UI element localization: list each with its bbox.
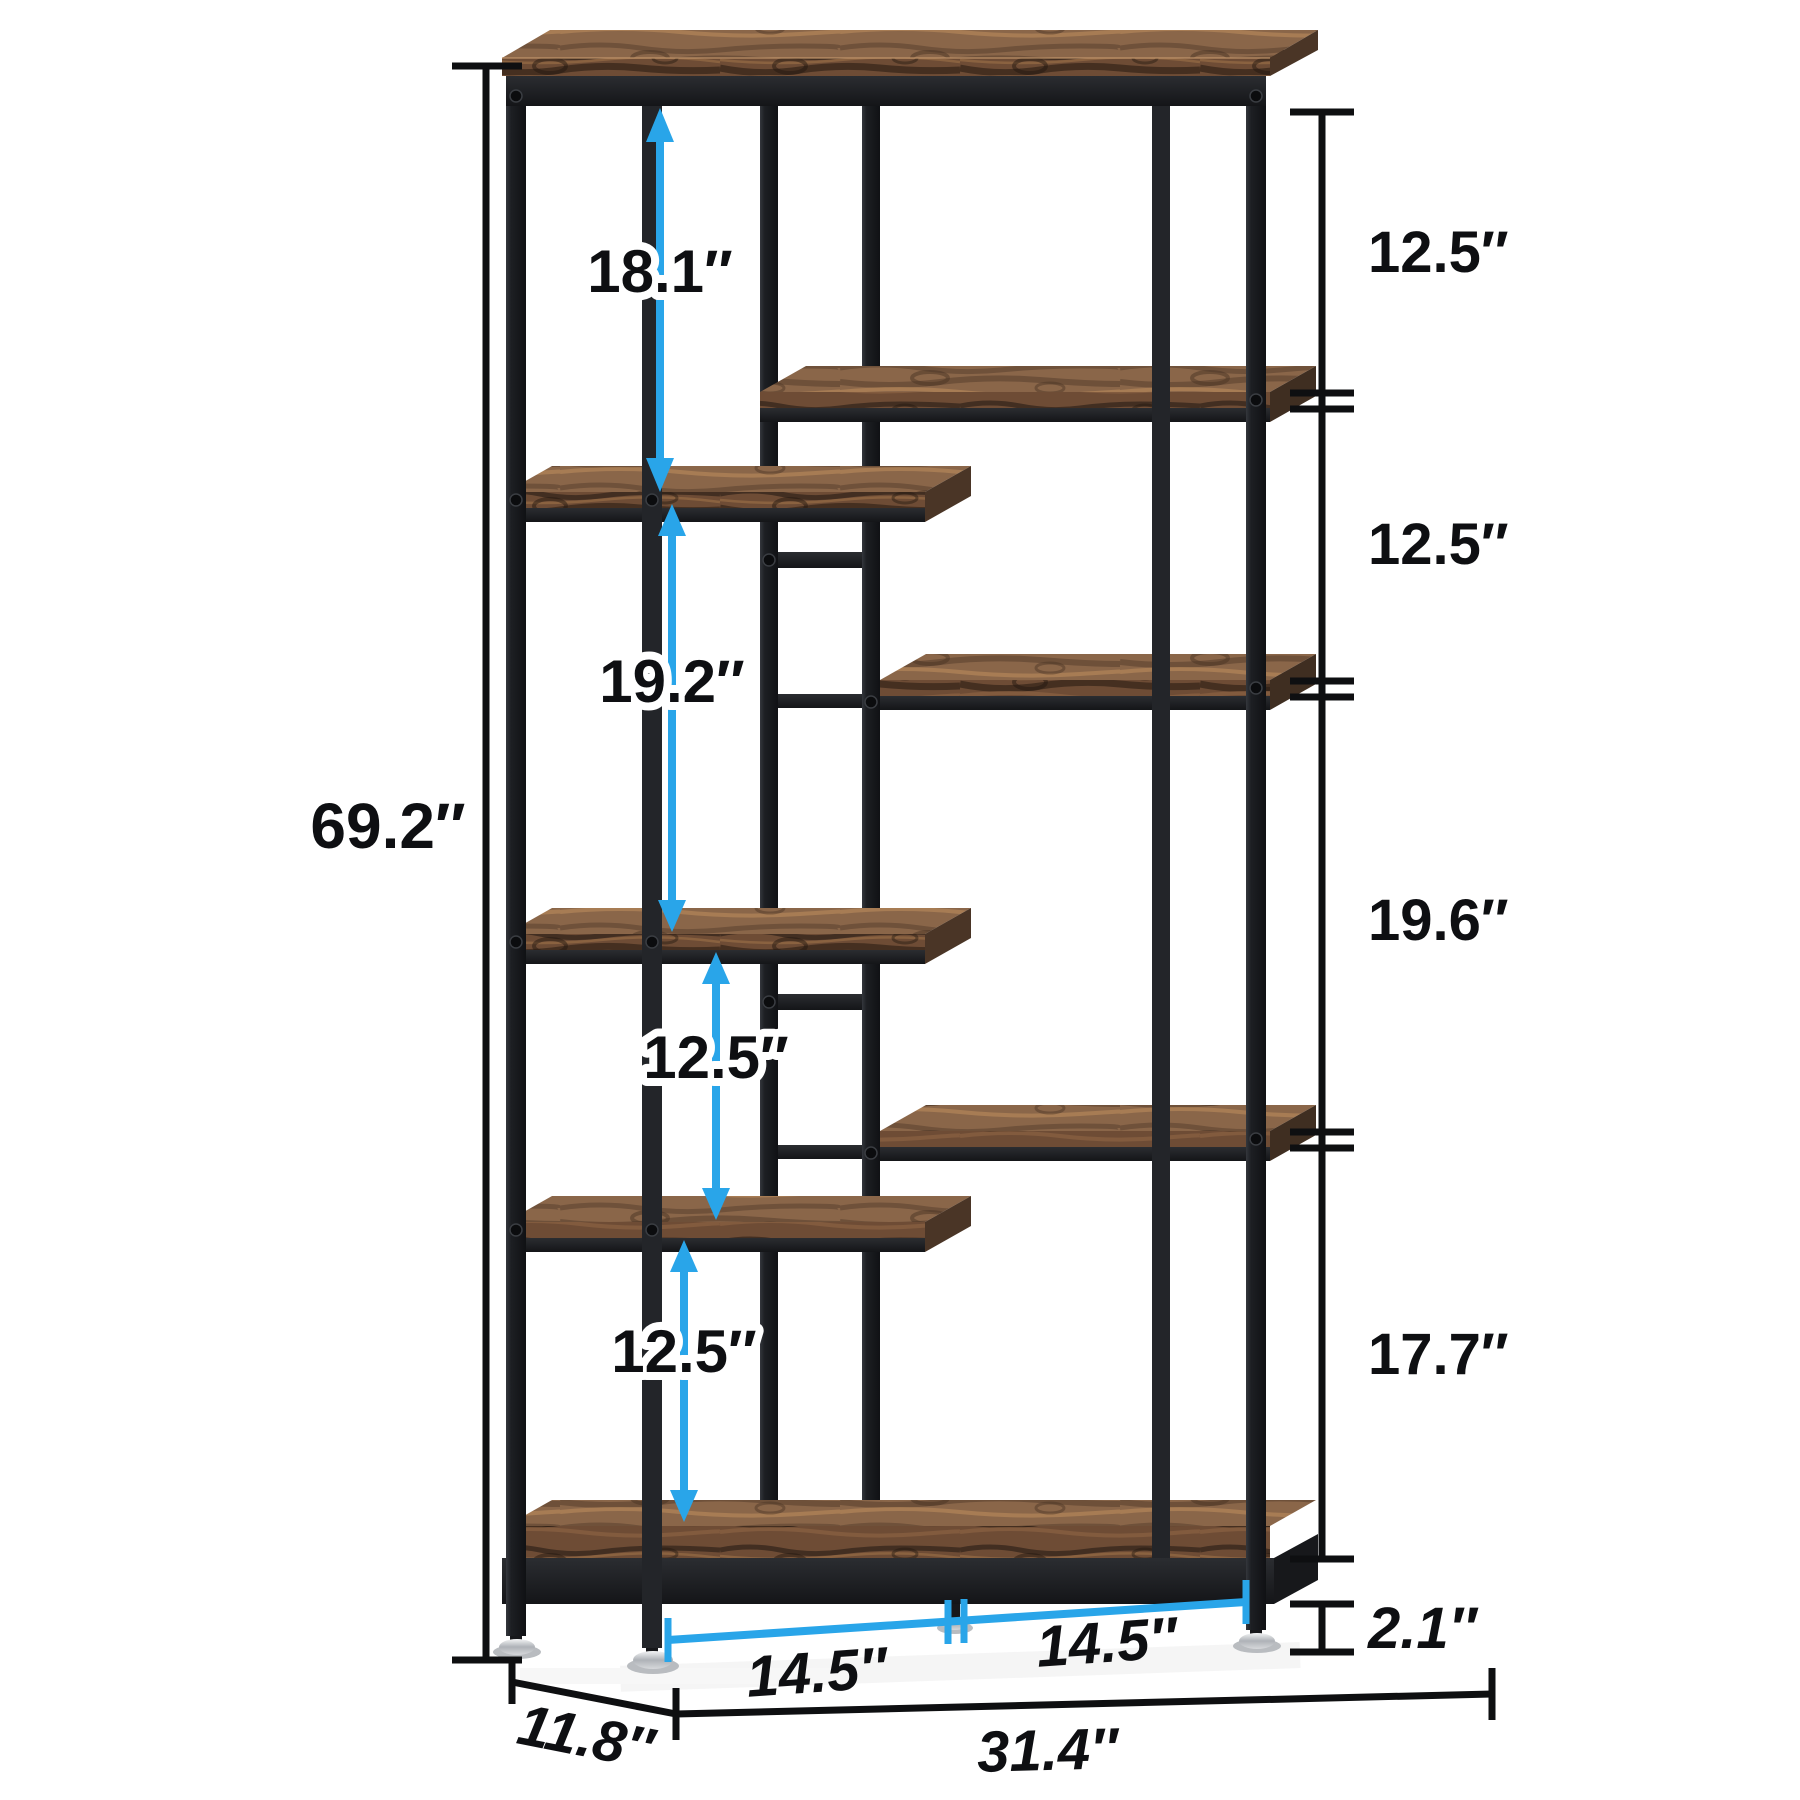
upper-window-bottom-rail [778, 694, 862, 708]
interior-arrow-dimensions: 18.1″ 19.2″ 12.5″ 12.5″ [587, 108, 789, 1522]
shelf-lower-left [506, 1196, 971, 1252]
top-frame-beam [506, 76, 1266, 106]
shelf-center-left [506, 908, 971, 964]
lower-window-top-rail [778, 994, 862, 1010]
right-dimension-line: 12.5″ 12.5″ 19.6″ 17.7″ [1290, 112, 1509, 1559]
shelf-upper-right [760, 366, 1316, 422]
shelf-middle-left [506, 466, 971, 522]
dim-base-left-span-label: 14.5″ [744, 1635, 891, 1710]
center-left-post [760, 100, 778, 1512]
foot-front-right [1233, 1630, 1281, 1653]
bookshelf-dimension-diagram: 69.2″ 18.1″ 19.2″ 12.5″ [0, 0, 1800, 1800]
front-left-post [506, 74, 526, 1636]
dimension-diagram-canvas: 69.2″ 18.1″ 19.2″ 12.5″ [0, 0, 1800, 1800]
dim-right-opening-1-label: 12.5″ [1368, 220, 1509, 285]
center-right-post [862, 100, 880, 1512]
foot-front-left [493, 1636, 541, 1659]
dim-base-clearance-label: 2.1″ [1367, 1596, 1479, 1661]
clearance-dimension: 2.1″ [1290, 1596, 1479, 1661]
bottom-shelf [502, 1500, 1318, 1604]
arrow-12-5-b: 12.5″ [611, 1240, 757, 1522]
dim-right-opening-3-label: 19.6″ [1368, 888, 1509, 953]
dim-overall-height-label: 69.2″ [310, 790, 465, 862]
dim-middle-left-opening-label: 19.2″ [599, 648, 745, 715]
arrow-18-1: 18.1″ [587, 108, 733, 492]
dim-lower-left-opening-2-label: 12.5″ [611, 1318, 757, 1385]
dim-right-opening-2-label: 12.5″ [1368, 512, 1509, 577]
front-right-post [1246, 74, 1266, 1630]
dim-base-right-span-label: 14.5″ [1034, 1605, 1181, 1680]
lower-window-bottom-rail [778, 1145, 862, 1159]
dim-overall-width-label: 31.4″ [976, 1716, 1121, 1785]
top-slab [502, 30, 1318, 76]
height-dimension: 69.2″ [310, 66, 522, 1660]
dim-right-opening-4-label: 17.7″ [1368, 1322, 1509, 1387]
dim-upper-left-opening-label: 18.1″ [587, 238, 733, 305]
upper-window-top-rail [778, 552, 862, 568]
arrow-19-2: 19.2″ [599, 504, 745, 932]
dim-lower-left-opening-1-label: 12.5″ [643, 1024, 789, 1091]
back-right-post [1152, 88, 1170, 1558]
